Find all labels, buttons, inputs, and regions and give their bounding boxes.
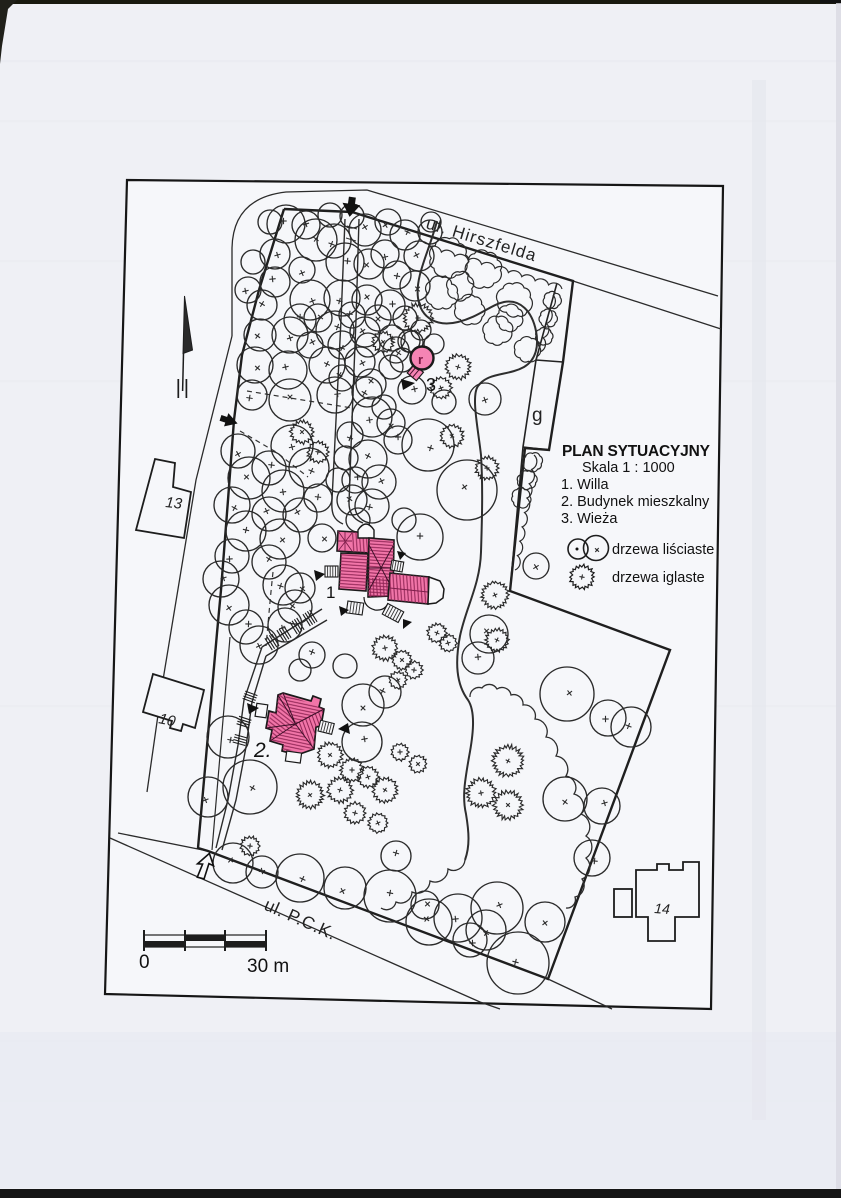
svg-text:0: 0 — [139, 952, 150, 973]
svg-text:r: r — [418, 352, 423, 367]
svg-text:drzewa liściaste: drzewa liściaste — [612, 542, 714, 558]
svg-text:2.: 2. — [253, 739, 272, 762]
svg-text:1: 1 — [326, 583, 335, 602]
svg-text:13: 13 — [165, 494, 184, 513]
svg-text:Skala 1 : 1000: Skala 1 : 1000 — [582, 460, 675, 476]
svg-text:PLAN SYTUACYJNY: PLAN SYTUACYJNY — [562, 443, 711, 460]
svg-text:3. Wieża: 3. Wieża — [561, 511, 618, 527]
svg-text:1. Willa: 1. Willa — [561, 477, 609, 493]
svg-text:14: 14 — [654, 900, 671, 917]
svg-text:drzewa iglaste: drzewa iglaste — [612, 570, 705, 586]
svg-text:30 m: 30 m — [247, 956, 289, 977]
svg-text:3: 3 — [426, 375, 436, 395]
svg-text:2. Budynek mieszkalny: 2. Budynek mieszkalny — [561, 494, 710, 510]
svg-text:g: g — [532, 405, 543, 426]
